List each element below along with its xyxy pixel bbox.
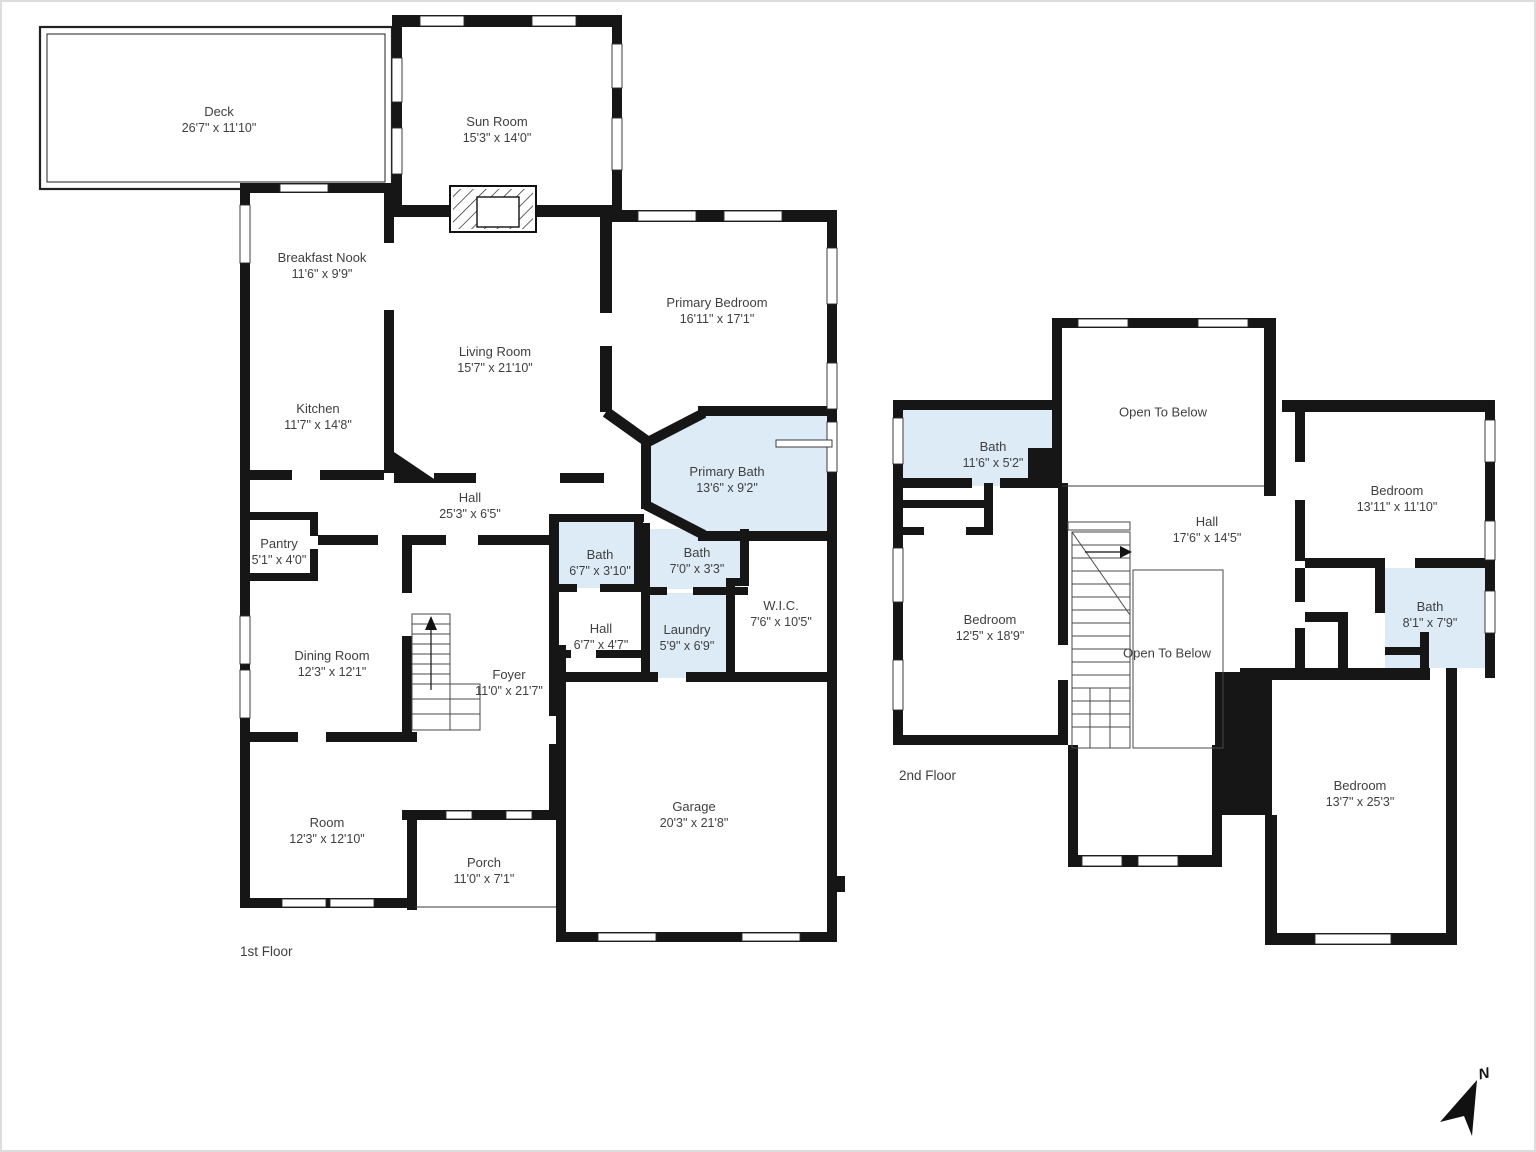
room-label-bedroom-2: Bedroom12'5" x 18'9": [956, 611, 1025, 645]
north-arrow-icon: [1440, 1080, 1477, 1136]
room-label-open-to-below-mid: Open To Below: [1123, 645, 1211, 662]
floorplan-page: Deck26'7" x 11'10" Sun Room15'3" x 14'0"…: [0, 0, 1536, 1152]
room-label-kitchen: Kitchen11'7" x 14'8": [284, 400, 352, 434]
room-label-pantry: Pantry5'1" x 4'0": [252, 535, 307, 569]
floor2-tag: 2nd Floor: [899, 768, 956, 783]
floorplan-drawing: [0, 0, 1536, 1152]
room-label-porch: Porch11'0" x 7'1": [454, 854, 515, 888]
room-label-hall-upper: Hall17'6" x 14'5": [1173, 513, 1242, 547]
room-label-garage: Garage20'3" x 21'8": [660, 798, 729, 832]
room-label-bath-1: Bath6'7" x 3'10": [569, 546, 631, 580]
room-label-bedroom-3: Bedroom13'7" x 25'3": [1326, 777, 1395, 811]
room-label-bedroom-1: Bedroom13'11" x 11'10": [1357, 482, 1438, 516]
room-label-deck: Deck26'7" x 11'10": [182, 103, 257, 137]
room-label-sun-room: Sun Room15'3" x 14'0": [463, 113, 532, 147]
room-label-bath-upper-2: Bath8'1" x 7'9": [1403, 598, 1458, 632]
room-label-primary-bedroom: Primary Bedroom16'11" x 17'1": [666, 294, 767, 328]
room-label-primary-bath: Primary Bath13'6" x 9'2": [689, 463, 764, 497]
floor1-tag: 1st Floor: [240, 944, 293, 959]
room-label-bath-upper-1: Bath11'6" x 5'2": [963, 438, 1024, 472]
room-label-hall-1: Hall25'3" x 6'5": [439, 489, 501, 523]
room-label-dining-room: Dining Room12'3" x 12'1": [294, 647, 369, 681]
fireplace: [450, 186, 536, 232]
room-label-bath-2: Bath7'0" x 3'3": [670, 544, 725, 578]
room-label-open-to-below-top: Open To Below: [1119, 404, 1207, 421]
room-label-breakfast-nook: Breakfast Nook11'6" x 9'9": [278, 249, 367, 283]
room-label-room: Room12'3" x 12'10": [289, 814, 365, 848]
room-label-laundry: Laundry5'9" x 6'9": [660, 621, 715, 655]
room-label-living-room: Living Room15'7" x 21'10": [457, 343, 533, 377]
room-label-foyer: Foyer11'0" x 21'7": [475, 666, 543, 700]
room-label-wic: W.I.C.7'6" x 10'5": [750, 597, 812, 631]
room-label-hall-2: Hall6'7" x 4'7": [574, 620, 629, 654]
